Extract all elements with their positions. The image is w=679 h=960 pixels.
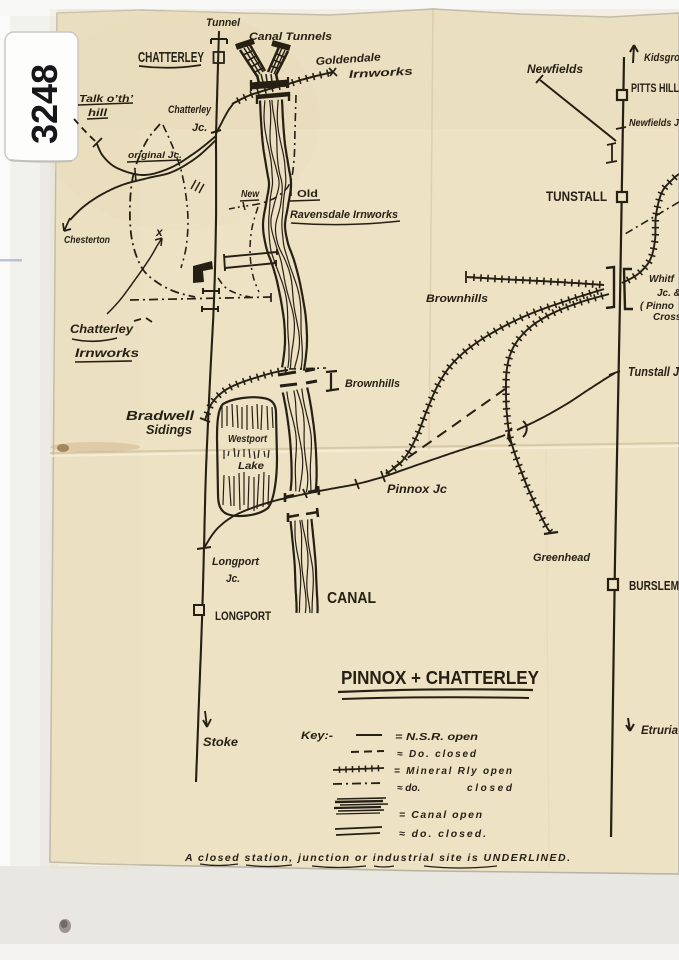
svg-text:Brownhills: Brownhills xyxy=(426,293,488,305)
svg-text:x: x xyxy=(155,225,164,239)
svg-text:CHATTERLEY: CHATTERLEY xyxy=(138,49,204,66)
svg-text:Westport: Westport xyxy=(228,433,267,445)
svg-text:Whitf: Whitf xyxy=(649,274,676,285)
svg-text:hill: hill xyxy=(88,108,107,119)
svg-text:( Pinno: ( Pinno xyxy=(640,301,674,312)
svg-text:Canal Tunnels: Canal Tunnels xyxy=(249,31,332,43)
svg-text:Lake: Lake xyxy=(238,460,264,472)
svg-text:Newfields: Newfields xyxy=(527,62,583,76)
svg-text:≈ Do. closed: ≈ Do. closed xyxy=(397,749,477,760)
svg-text:Sidings: Sidings xyxy=(146,422,192,437)
svg-text:original Jc.: original Jc. xyxy=(128,150,182,161)
svg-text:Kidsgro: Kidsgro xyxy=(644,52,679,64)
svg-text:Greenhead: Greenhead xyxy=(533,552,590,564)
svg-text:= Canal open: = Canal open xyxy=(399,809,482,821)
svg-text:Cross: Cross xyxy=(653,312,679,323)
svg-text:Bradwell: Bradwell xyxy=(126,408,194,423)
svg-text:Brownhills: Brownhills xyxy=(345,378,400,390)
svg-text:3248: 3248 xyxy=(24,64,65,144)
svg-text:A closed station, junction or: A closed station, junction or industrial… xyxy=(184,852,570,864)
svg-text:Pinnox Jc: Pinnox Jc xyxy=(387,484,448,496)
svg-text:= Mineral Rly open: = Mineral Rly open xyxy=(394,766,512,777)
svg-text:Jc.: Jc. xyxy=(192,122,207,134)
svg-text:BURSLEM: BURSLEM xyxy=(629,578,679,593)
svg-text:PІTTS HILL: PІTTS HILL xyxy=(631,81,679,95)
svg-text:Jc. &: Jc. & xyxy=(657,288,679,299)
svg-text:Chatterley: Chatterley xyxy=(168,104,212,116)
svg-text:Chesterton: Chesterton xyxy=(64,235,110,246)
svg-text:CANAL: CANAL xyxy=(327,590,376,607)
svg-text:New: New xyxy=(241,189,260,200)
svg-text:Stoke: Stoke xyxy=(203,735,238,749)
svg-text:Newfields J: Newfields J xyxy=(629,118,679,129)
svg-text:Chatterley: Chatterley xyxy=(70,322,134,336)
svg-text:Irnworks: Irnworks xyxy=(75,346,139,360)
svg-text:Longport: Longport xyxy=(212,556,260,568)
svg-text:LONGPORT: LONGPORT xyxy=(215,609,272,623)
svg-text:Tunnel: Tunnel xyxy=(206,17,241,29)
svg-text:Ravensdale Irnworks: Ravensdale Irnworks xyxy=(290,209,398,221)
svg-text:Etruria: Etruria xyxy=(641,723,678,737)
svg-text:≈ do.: ≈ do. xyxy=(397,783,420,794)
svg-text:TUNSTALL: TUNSTALL xyxy=(546,188,607,204)
svg-text:PІNNOX + CHATTERLEY: PІNNOX + CHATTERLEY xyxy=(341,668,539,688)
svg-text:Key:-: Key:- xyxy=(301,730,333,742)
svg-text:Old: Old xyxy=(297,188,318,200)
svg-text:Tunstall J: Tunstall J xyxy=(628,365,679,379)
svg-text:Jc.: Jc. xyxy=(226,573,240,585)
svg-text:= N.S.R. open: = N.S.R. open xyxy=(395,732,478,743)
